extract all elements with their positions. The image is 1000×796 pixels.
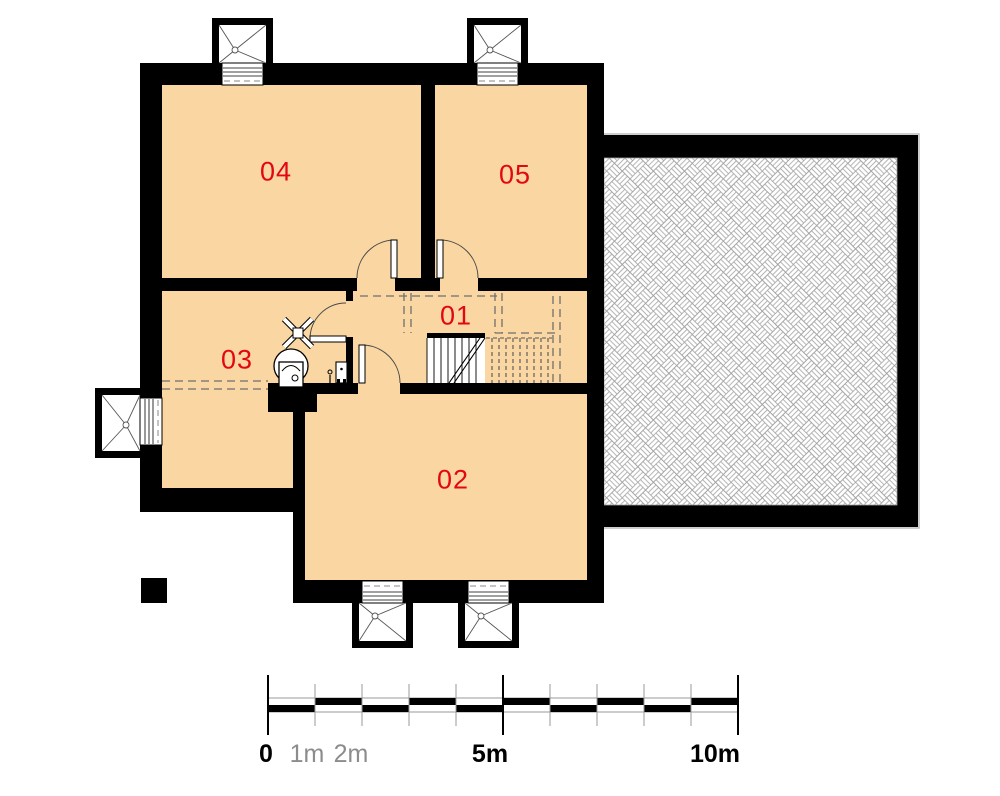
window-icon (362, 581, 403, 603)
window-well-icon (212, 18, 273, 63)
window-icon (222, 63, 263, 85)
window-icon (477, 63, 518, 85)
window-well-icon (458, 603, 519, 648)
room-label-02: 02 (437, 465, 469, 496)
room-label-04: 04 (260, 157, 292, 188)
window-icon (140, 398, 162, 445)
scale-label-2m: 2m (334, 740, 369, 769)
scale-label-0: 0 (259, 740, 273, 769)
scale-label-1m: 1m (290, 740, 325, 769)
room-label-05: 05 (499, 160, 531, 191)
window-icon (468, 581, 509, 603)
window-well-icon (95, 388, 140, 458)
floorplan-drawing (0, 0, 1000, 796)
floorplan-canvas: 01 02 03 04 05 0 1m 2m 5m 10m (0, 0, 1000, 796)
unexcavated-hatch (604, 158, 897, 505)
boiler-icon (274, 349, 308, 387)
scale-label-10m: 10m (690, 740, 740, 769)
room-label-03: 03 (221, 345, 253, 376)
scale-bar (268, 675, 738, 735)
window-well-icon (467, 18, 528, 63)
window-well-icon (352, 603, 413, 648)
pillar-footing (141, 578, 167, 603)
scale-label-5m: 5m (472, 740, 508, 769)
room-label-01: 01 (440, 301, 472, 332)
